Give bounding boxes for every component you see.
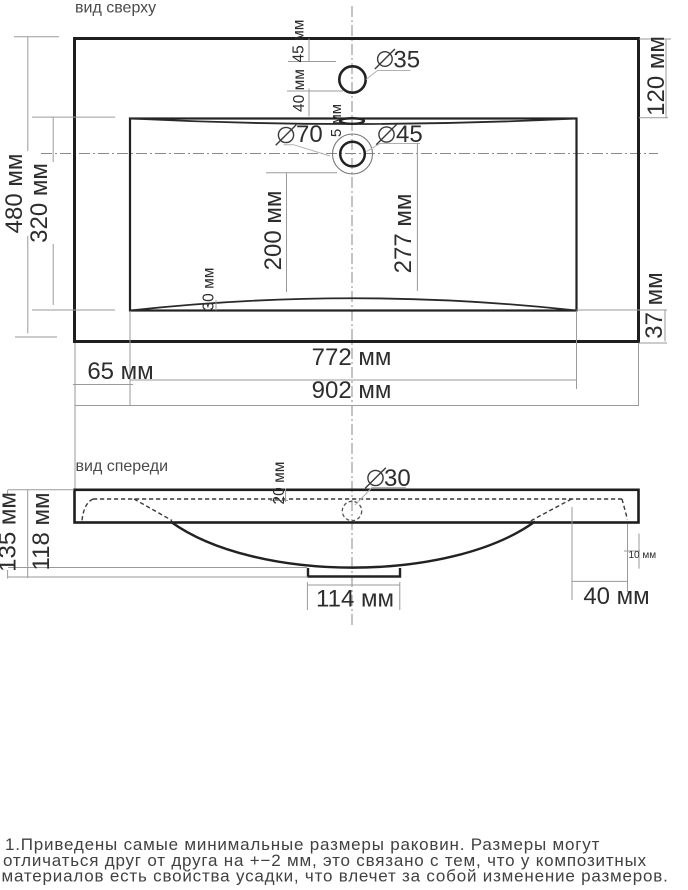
svg-text:45 мм: 45 мм xyxy=(291,20,308,63)
svg-text:772 мм: 772 мм xyxy=(312,344,392,371)
svg-text:118 мм: 118 мм xyxy=(28,493,55,571)
svg-text:40 мм: 40 мм xyxy=(291,69,308,112)
svg-text:20 мм: 20 мм xyxy=(271,462,288,505)
svg-text:65 мм: 65 мм xyxy=(87,358,153,385)
svg-text:30 мм: 30 мм xyxy=(201,268,218,311)
svg-text:277 мм: 277 мм xyxy=(390,194,417,274)
svg-text:320 мм: 320 мм xyxy=(26,163,53,243)
svg-text:материалов есть свойства усадк: материалов есть свойства усадки, что вле… xyxy=(2,867,669,886)
svg-text:135 мм: 135 мм xyxy=(0,492,22,572)
svg-text:10 мм: 10 мм xyxy=(629,550,657,561)
svg-text:70: 70 xyxy=(296,121,323,148)
svg-text:480 мм: 480 мм xyxy=(1,154,28,234)
svg-text:35: 35 xyxy=(393,47,420,74)
svg-text:37 мм: 37 мм xyxy=(641,272,668,338)
svg-text:вид сверху: вид сверху xyxy=(75,0,156,17)
svg-text:5 мм: 5 мм xyxy=(328,104,345,137)
svg-text:200 мм: 200 мм xyxy=(260,191,287,271)
svg-text:120 мм: 120 мм xyxy=(643,36,670,116)
svg-text:40 мм: 40 мм xyxy=(583,583,649,610)
svg-text:114 мм: 114 мм xyxy=(316,586,394,613)
svg-text:902 мм: 902 мм xyxy=(312,377,392,404)
svg-text:вид спереди: вид спереди xyxy=(76,458,169,475)
